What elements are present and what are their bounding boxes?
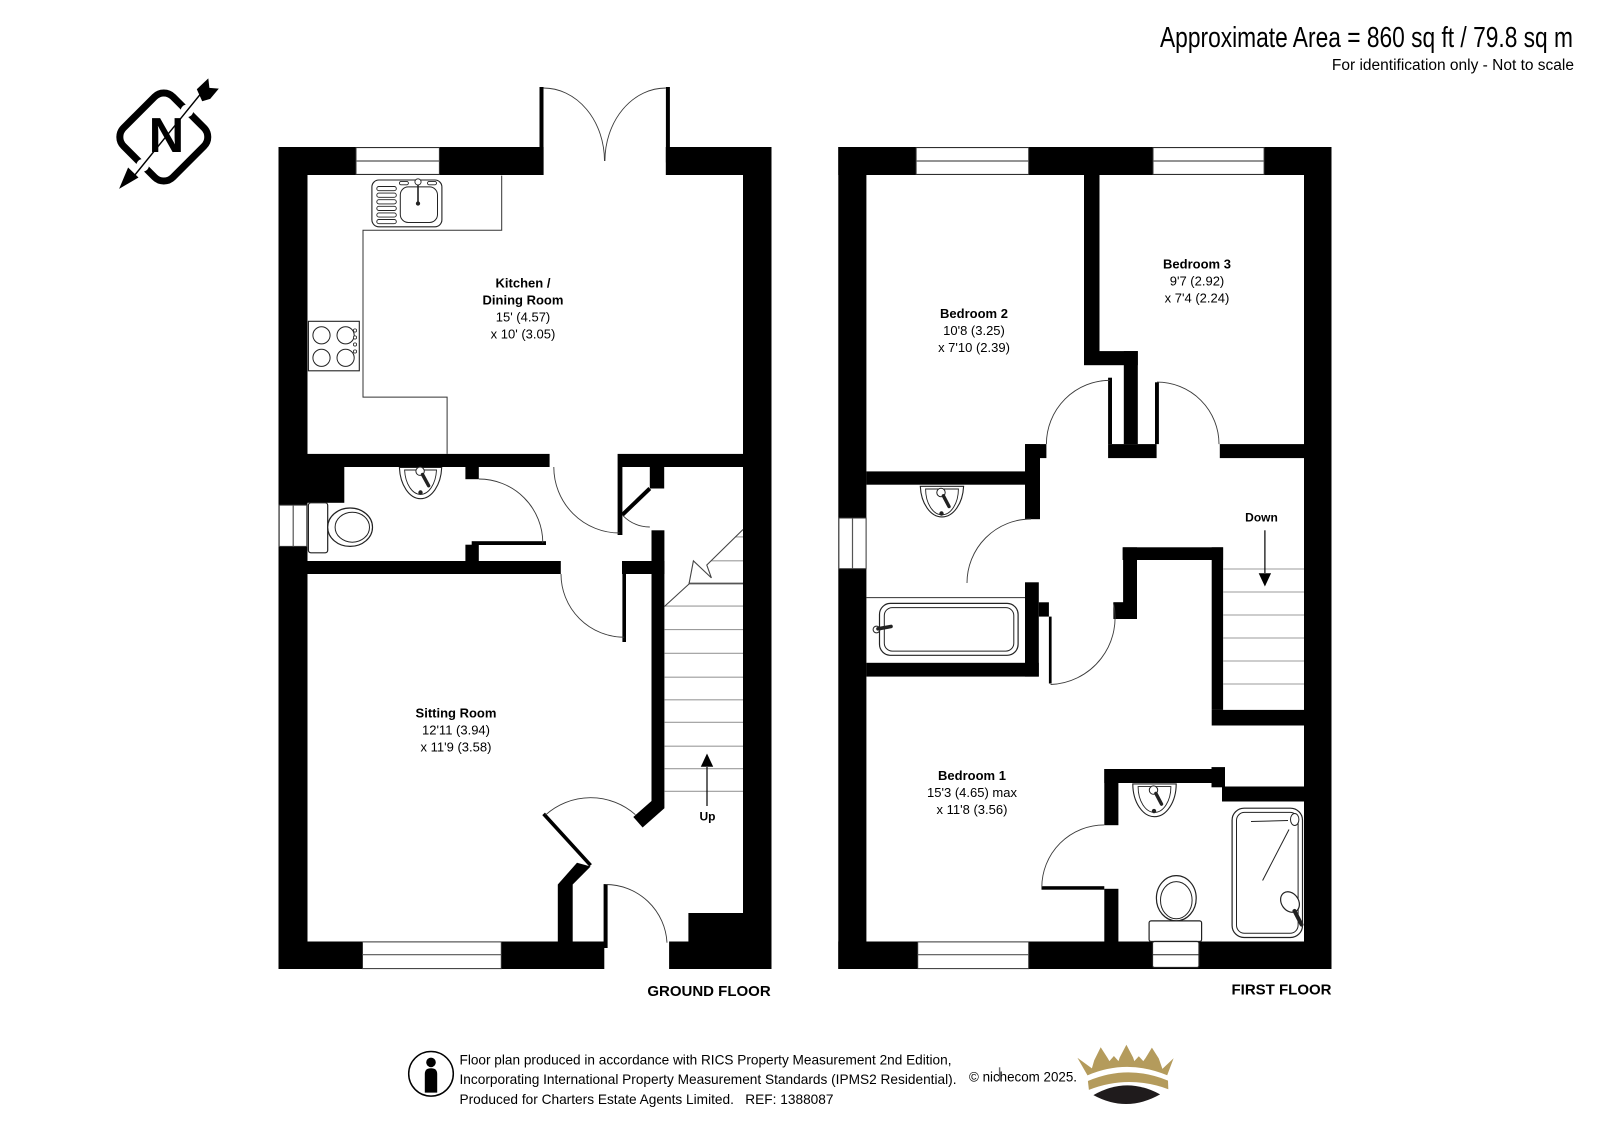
svg-text:x 11'9 (3.58): x 11'9 (3.58) xyxy=(421,740,492,755)
svg-text:Down: Down xyxy=(1245,511,1278,525)
svg-text:For identification only - Not: For identification only - Not to scale xyxy=(1332,57,1574,74)
svg-text:Incorporating International Pr: Incorporating International Property Mea… xyxy=(460,1071,957,1087)
svg-text:Bedroom 3: Bedroom 3 xyxy=(1163,257,1231,272)
svg-text:15' (4.57): 15' (4.57) xyxy=(496,310,551,325)
svg-text:GROUND FLOOR: GROUND FLOOR xyxy=(647,983,770,1000)
svg-text:x 10' (3.05): x 10' (3.05) xyxy=(491,327,556,342)
svg-text:Bedroom 1: Bedroom 1 xyxy=(938,768,1006,783)
svg-text:x 7'4 (2.24): x 7'4 (2.24) xyxy=(1165,291,1230,306)
svg-text:15'3 (4.65) max: 15'3 (4.65) max xyxy=(927,785,1017,800)
svg-text:Up: Up xyxy=(700,810,716,824)
svg-text:Sitting Room: Sitting Room xyxy=(416,706,497,721)
svg-text:12'11 (3.94): 12'11 (3.94) xyxy=(422,723,490,738)
svg-text:© nichecom 2025.: © nichecom 2025. xyxy=(969,1070,1077,1085)
svg-text:Bedroom 2: Bedroom 2 xyxy=(940,306,1008,321)
svg-text:N: N xyxy=(149,109,184,163)
svg-text:FIRST FLOOR: FIRST FLOOR xyxy=(1232,982,1332,999)
svg-text:9'7 (2.92): 9'7 (2.92) xyxy=(1170,274,1225,289)
svg-text:Produced for Charters Estate A: Produced for Charters Estate Agents Limi… xyxy=(460,1091,834,1107)
svg-text:Kitchen /: Kitchen / xyxy=(496,276,551,291)
svg-text:Approximate Area = 860 sq ft /: Approximate Area = 860 sq ft / 79.8 sq m xyxy=(1160,22,1573,54)
svg-text:x 7'10 (2.39): x 7'10 (2.39) xyxy=(938,340,1010,355)
svg-text:x 11'8 (3.56): x 11'8 (3.56) xyxy=(937,802,1008,817)
svg-text:Floor plan produced in accorda: Floor plan produced in accordance with R… xyxy=(460,1052,952,1068)
svg-text:10'8 (3.25): 10'8 (3.25) xyxy=(943,323,1005,338)
svg-text:Dining Room: Dining Room xyxy=(483,293,564,308)
